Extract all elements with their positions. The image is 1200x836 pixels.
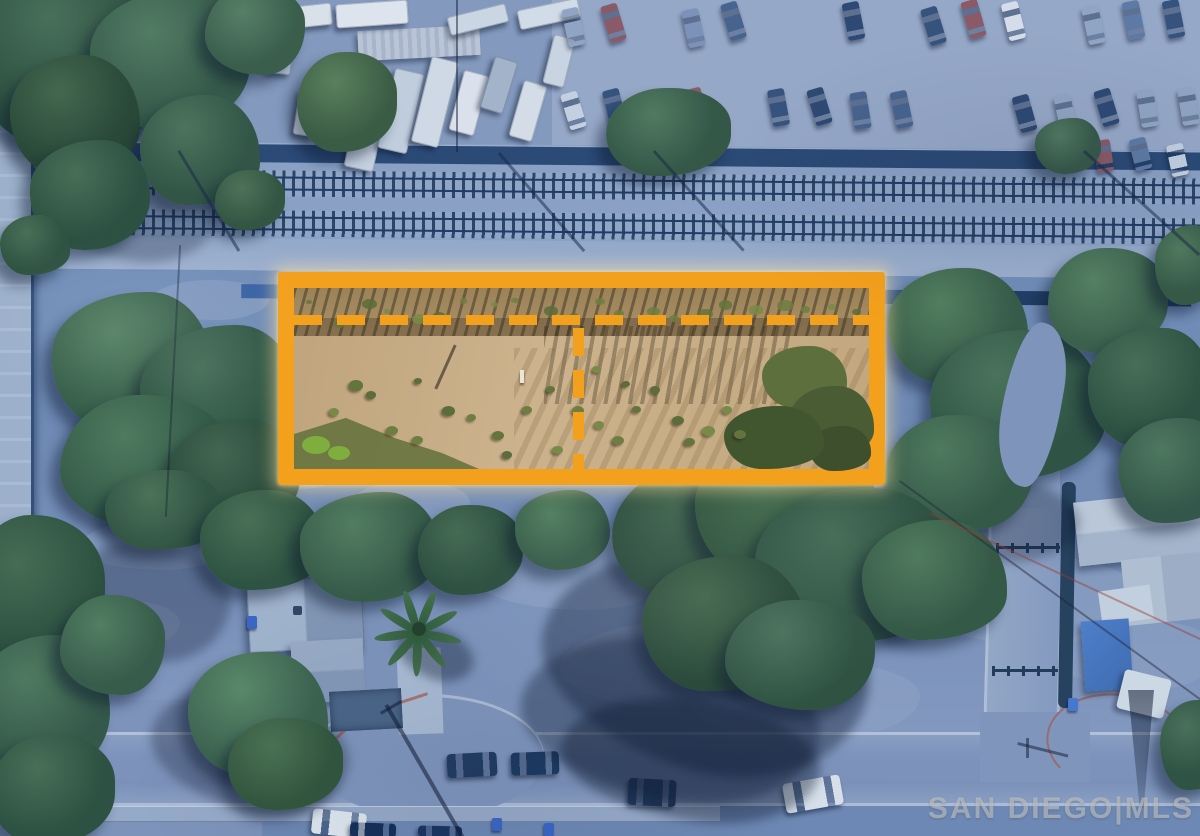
brush-plant: [491, 302, 498, 307]
pole-shadow: [434, 344, 456, 389]
tree-canopy: [0, 215, 70, 275]
shrub: [386, 426, 398, 435]
shrub: [442, 406, 455, 416]
pole-shadow-crossarm: [1026, 738, 1029, 758]
shrub: [546, 386, 555, 393]
shrub: [672, 416, 684, 425]
shrub: [467, 414, 476, 421]
tree-canopy: [725, 600, 875, 710]
shrub: [329, 408, 339, 416]
brush-plant: [749, 305, 762, 314]
shrub: [414, 378, 422, 384]
shrub: [722, 406, 732, 414]
highlighted-parcel: [278, 272, 885, 485]
trash-bin: [247, 616, 257, 629]
brush-plant: [719, 300, 732, 309]
stored-vehicle: [335, 0, 408, 28]
shrub: [612, 436, 624, 445]
survey-stake: [520, 370, 524, 383]
street-barricade: [992, 666, 1058, 676]
shrub: [492, 431, 504, 440]
tree-canopy: [215, 170, 285, 230]
shrub: [650, 386, 660, 394]
shrub: [502, 451, 512, 459]
shrub: [366, 391, 376, 399]
shrub: [522, 406, 532, 414]
brush-plant: [828, 304, 836, 309]
tree-canopy: [60, 595, 165, 695]
trash-bin: [492, 818, 502, 831]
tree-canopy: [228, 718, 343, 810]
parked-car: [446, 752, 497, 779]
aerial-property-screenshot: SAN DIEGO|MLS: [0, 0, 1200, 836]
tree-canopy: [1035, 118, 1101, 174]
brush-plant: [384, 309, 390, 313]
parcel-division-dash-vertical: [573, 328, 584, 469]
tree-canopy: [297, 52, 397, 152]
palm-center: [412, 622, 426, 636]
shrub: [592, 366, 601, 373]
palm-tree: [372, 580, 464, 684]
shrub: [594, 421, 604, 429]
brush-plant: [460, 298, 468, 303]
parked-car: [350, 822, 396, 836]
trash-bin: [1068, 698, 1078, 711]
trash-bin: [544, 823, 554, 836]
utility-wire: [456, 0, 458, 152]
tree-canopy: [606, 88, 731, 176]
brush-plant: [777, 300, 793, 311]
shrub: [702, 426, 715, 436]
green-bush: [302, 436, 330, 454]
shrub: [734, 430, 746, 439]
shrub: [622, 381, 630, 387]
tree-canopy: [0, 735, 115, 836]
green-bush: [328, 446, 350, 460]
tree-canopy: [515, 490, 610, 570]
mls-watermark: SAN DIEGO|MLS: [928, 792, 1194, 826]
shrub: [632, 406, 641, 413]
parcel-division-dash-horizontal: [294, 315, 869, 325]
shrub: [349, 380, 363, 391]
shrub: [412, 436, 423, 444]
brush-plant: [595, 298, 605, 305]
brush-plant: [801, 306, 810, 312]
chimney: [293, 606, 302, 615]
